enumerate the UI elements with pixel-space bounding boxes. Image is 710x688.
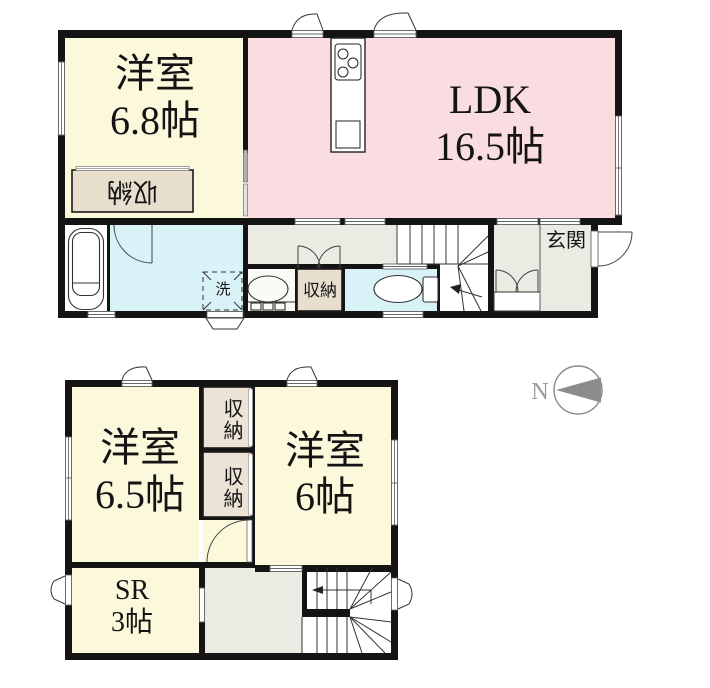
compass-north-arrow (556, 378, 601, 403)
f1-sliding-doors (244, 150, 248, 216)
stair-awning-window (398, 579, 412, 609)
room-size: 6.5帖 (40, 471, 240, 518)
compass-north-label: N (531, 379, 548, 405)
f2-hallway (205, 568, 302, 653)
f2-service-room-label: SR 3帖 (57, 575, 207, 639)
room-size: 16.5帖 (390, 123, 590, 170)
f2-closet-lower-label: 収納 (217, 462, 246, 514)
room-size: 6.8帖 (55, 97, 255, 144)
f1-hall-closet-label: 収納 (301, 281, 339, 300)
f1-entrance-label: 玄関 (538, 230, 594, 253)
f1-room-west-label: 洋室 6.8帖 (55, 50, 255, 144)
compass: N (531, 366, 602, 414)
f1-ldk-label: LDK 16.5帖 (390, 76, 590, 170)
f1-stairs-area (398, 225, 488, 264)
f1-closet-label: 収納 (72, 177, 193, 205)
f1-laundry-label: 洗 (204, 282, 242, 299)
room-name: 洋室 (55, 50, 255, 97)
f2-room-west-label: 洋室 6.5帖 (40, 424, 240, 518)
f2-door-nook (203, 520, 252, 562)
room-name: 洋室 (225, 428, 425, 474)
f1-hallway (248, 225, 396, 264)
entry-door-arc (598, 232, 632, 266)
room-size: 6帖 (225, 474, 425, 520)
f2-stairs-area (307, 568, 391, 653)
room-size: 3帖 (57, 607, 207, 639)
compass-circle (554, 366, 602, 414)
room-name: LDK (390, 76, 590, 123)
f1-stairs-area-lower (440, 269, 488, 311)
back-door-step (206, 318, 244, 329)
room-name: SR (57, 575, 207, 607)
f2-closet-upper-label: 収納 (217, 394, 246, 446)
f1-bathroom (65, 225, 107, 311)
f1-toilet-room (345, 269, 437, 311)
f2-room-east-label: 洋室 6帖 (225, 428, 425, 520)
floorplan-canvas: N 洋室 6.8帖 LDK 16.5帖 収納 洗 収納 玄関 洋室 6.5帖 洋… (0, 0, 710, 688)
room-name: 洋室 (40, 424, 240, 471)
f1-vanity-nook (248, 269, 295, 311)
